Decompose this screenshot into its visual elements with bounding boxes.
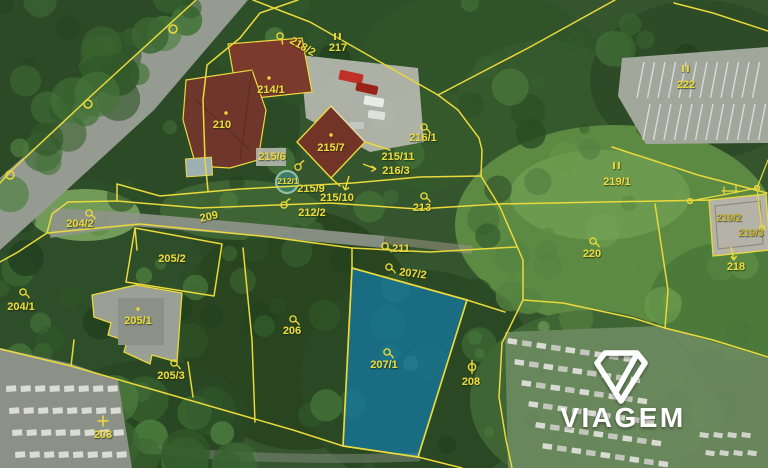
- parcel-label-215-7: 215/7: [317, 142, 345, 154]
- cadastral-map-canvas[interactable]: II II II 218/2 217 214/1 210 215/6 215/7…: [0, 0, 768, 468]
- parcel-label-210: 210: [213, 119, 231, 131]
- parcel-label-222: 222: [677, 79, 695, 91]
- parcel-label-215-6: 215/6: [258, 151, 286, 163]
- parcel-label-203: 203: [94, 429, 112, 441]
- parcel-label-212-1: 212/1: [277, 176, 299, 186]
- parcel-label-215-11: 215/11: [381, 151, 414, 163]
- parcel-label-218: 218: [727, 261, 745, 273]
- parcel-label-219-1: 219/1: [603, 176, 631, 188]
- parcel-label-206: 206: [283, 325, 301, 337]
- parking-lot-222: [618, 47, 768, 144]
- parcel-label-205-3: 205/3: [157, 370, 185, 382]
- parcel-label-205-2: 205/2: [158, 253, 186, 265]
- parcel-label-212-2: 212/2: [298, 207, 326, 219]
- parcel-label-205-1: 205/1: [124, 315, 152, 327]
- parcel-label-217: 217: [329, 42, 347, 54]
- parcel-label-211: 211: [392, 243, 410, 255]
- parcel-label-220: 220: [583, 248, 601, 260]
- shed: [185, 157, 212, 177]
- parcel-label-214-1: 214/1: [257, 84, 285, 96]
- parcel-label-215-10: 215/10: [320, 192, 354, 204]
- forest-mark: II: [681, 64, 690, 75]
- parcel-label-219-3: 219/3: [738, 228, 763, 239]
- cemetery: [505, 326, 768, 468]
- parcel-label-204-2: 204/2: [66, 218, 94, 230]
- cadastral-map-screenshot: II II II 218/2 217 214/1 210 215/6 215/7…: [0, 0, 768, 468]
- forest-mark: II: [612, 161, 621, 172]
- parcel-label-216-3: 216/3: [382, 165, 410, 177]
- parcel-label-204-1: 204/1: [7, 301, 35, 313]
- parcel-label-207-1: 207/1: [370, 359, 398, 371]
- viagem-logo-text: VIAGEM: [560, 402, 685, 433]
- parcel-label-213: 213: [413, 202, 431, 214]
- parcel-label-219-2: 219/2: [716, 213, 741, 224]
- parcel-label-216-1: 216/1: [409, 132, 437, 144]
- parcel-label-208: 208: [462, 376, 480, 388]
